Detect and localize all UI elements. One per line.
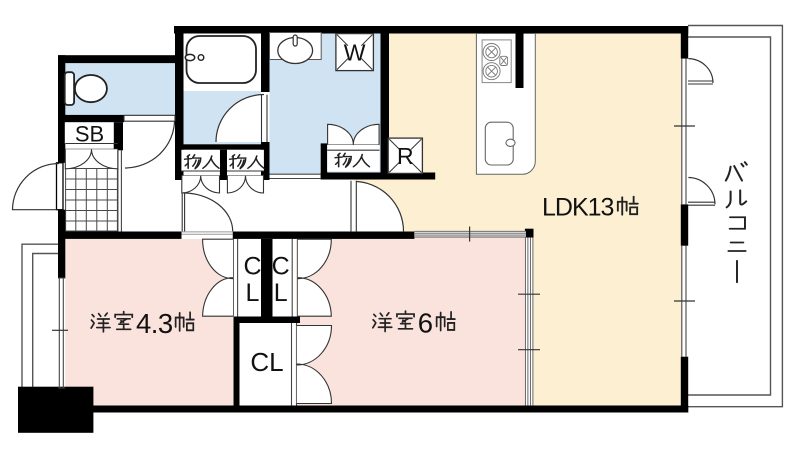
svg-text:6: 6 bbox=[418, 307, 433, 338]
svg-text:L: L bbox=[274, 279, 288, 307]
svg-text:R: R bbox=[397, 143, 414, 169]
svg-text:L: L bbox=[246, 279, 260, 307]
svg-text:C: C bbox=[243, 253, 261, 281]
svg-text:C: C bbox=[272, 253, 290, 281]
svg-text:4.3: 4.3 bbox=[136, 308, 173, 339]
svg-text:LDK13: LDK13 bbox=[542, 194, 614, 222]
svg-text:CL: CL bbox=[250, 347, 283, 377]
svg-text:W: W bbox=[344, 40, 366, 66]
svg-text:SB: SB bbox=[75, 122, 104, 147]
